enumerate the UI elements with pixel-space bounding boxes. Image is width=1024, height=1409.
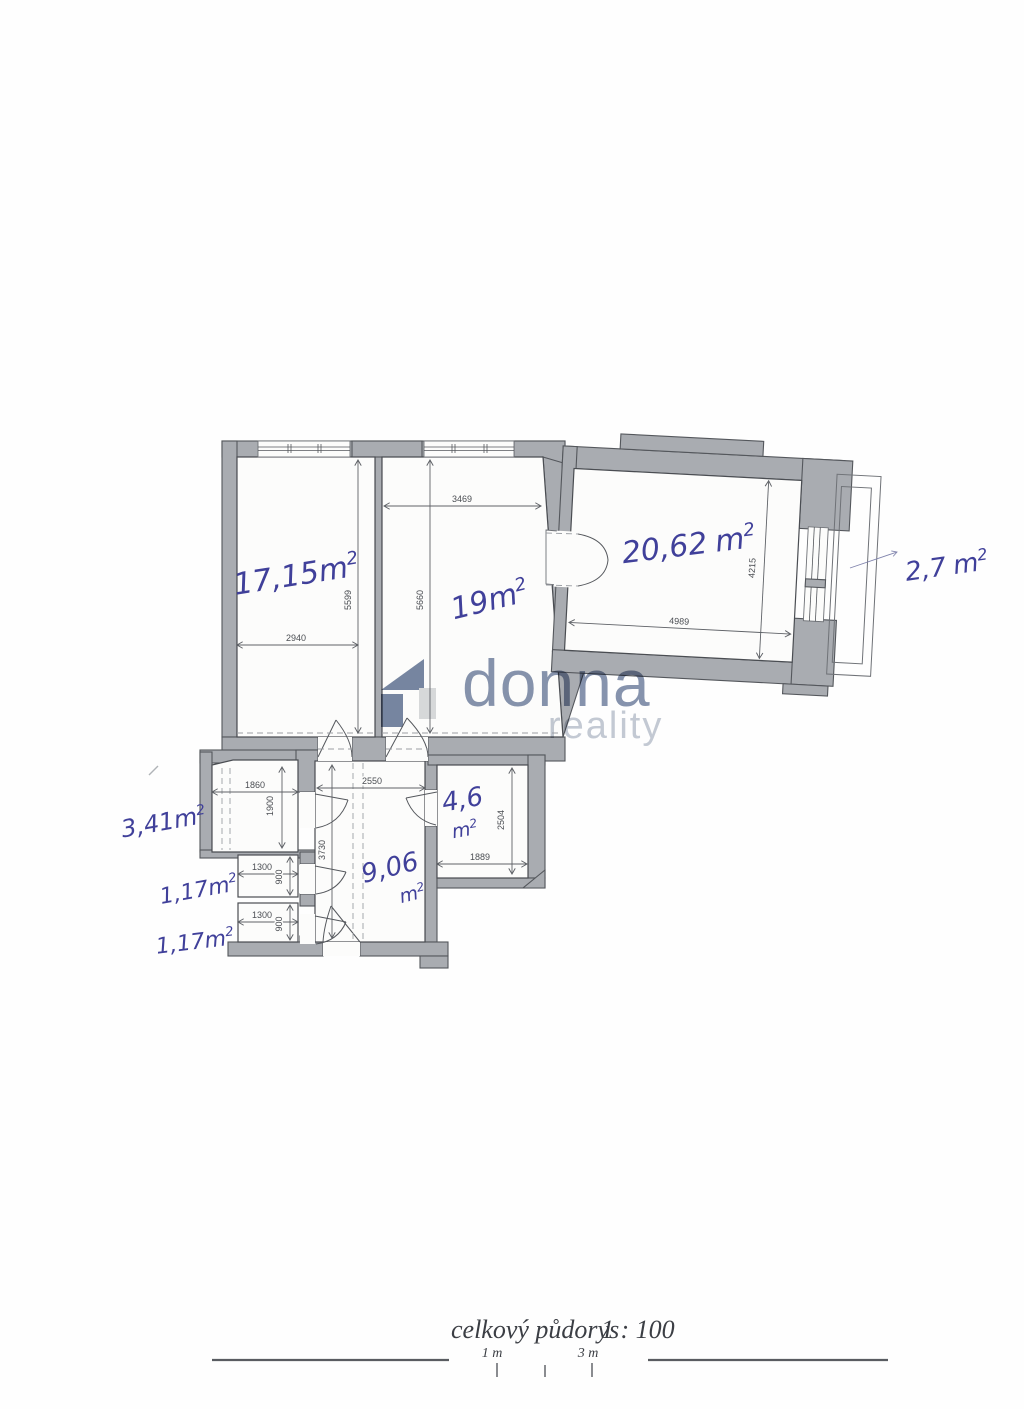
scanned-floorplan-page: 4989 4215 donna reality (0, 0, 1024, 1409)
wc-lower-shape (238, 903, 298, 942)
room-area-label-wc-lower: 1,17m2 (155, 924, 236, 959)
window-room19 (424, 441, 514, 457)
room-area-label-closet: 3,41m2 (119, 801, 208, 843)
logo-block-shape (381, 694, 403, 727)
balcony-window (803, 527, 828, 622)
logo-chimney-shape (419, 688, 436, 719)
balcony-leader-arrow (850, 552, 897, 568)
scale-mark-3m: 3 m (577, 1346, 599, 1361)
dim-hall-height: 3730 (317, 840, 327, 860)
plan-caption: celkový půdorys (451, 1315, 619, 1344)
dim-room20-height: 4215 (747, 558, 758, 579)
closet-shape (212, 760, 298, 852)
dim-wc-upper-height: 900 (274, 869, 284, 884)
dim-room20-width: 4989 (669, 616, 690, 627)
scale-bar: 1 m 3 m (212, 1346, 888, 1377)
dim-pantry-width: 1889 (470, 852, 490, 862)
watermark-subtitle: reality (548, 705, 663, 747)
room-area-label-balcony: 2,7m2 (903, 544, 991, 587)
dim-room17-height: 5599 (343, 590, 353, 610)
dim-pantry-height: 2504 (496, 810, 506, 830)
window-room17 (258, 441, 350, 457)
dim-room19-top: 3469 (452, 494, 472, 504)
dim-closet-width: 1860 (245, 780, 265, 790)
plan-scale-ratio: 1 : 100 (601, 1315, 675, 1344)
dim-room19-height: 5660 (415, 590, 425, 610)
floor-plan-drawing: 4989 4215 donna reality (0, 0, 1024, 1409)
scan-artifact-mark (149, 766, 158, 775)
scale-mark-1m: 1 m (482, 1346, 503, 1361)
dim-wc-upper-width: 1300 (252, 862, 272, 872)
dim-hall-width: 2550 (362, 776, 382, 786)
dim-closet-height: 1900 (265, 796, 275, 816)
room-area-label-wc-upper: 1,17m2 (158, 870, 240, 909)
footer: celkový půdorys 1 : 100 1 m 3 m (212, 1315, 888, 1377)
dim-wc-lower-width: 1300 (252, 910, 272, 920)
dim-wc-lower-height: 900 (274, 916, 284, 931)
dim-room17-width: 2940 (286, 633, 306, 643)
